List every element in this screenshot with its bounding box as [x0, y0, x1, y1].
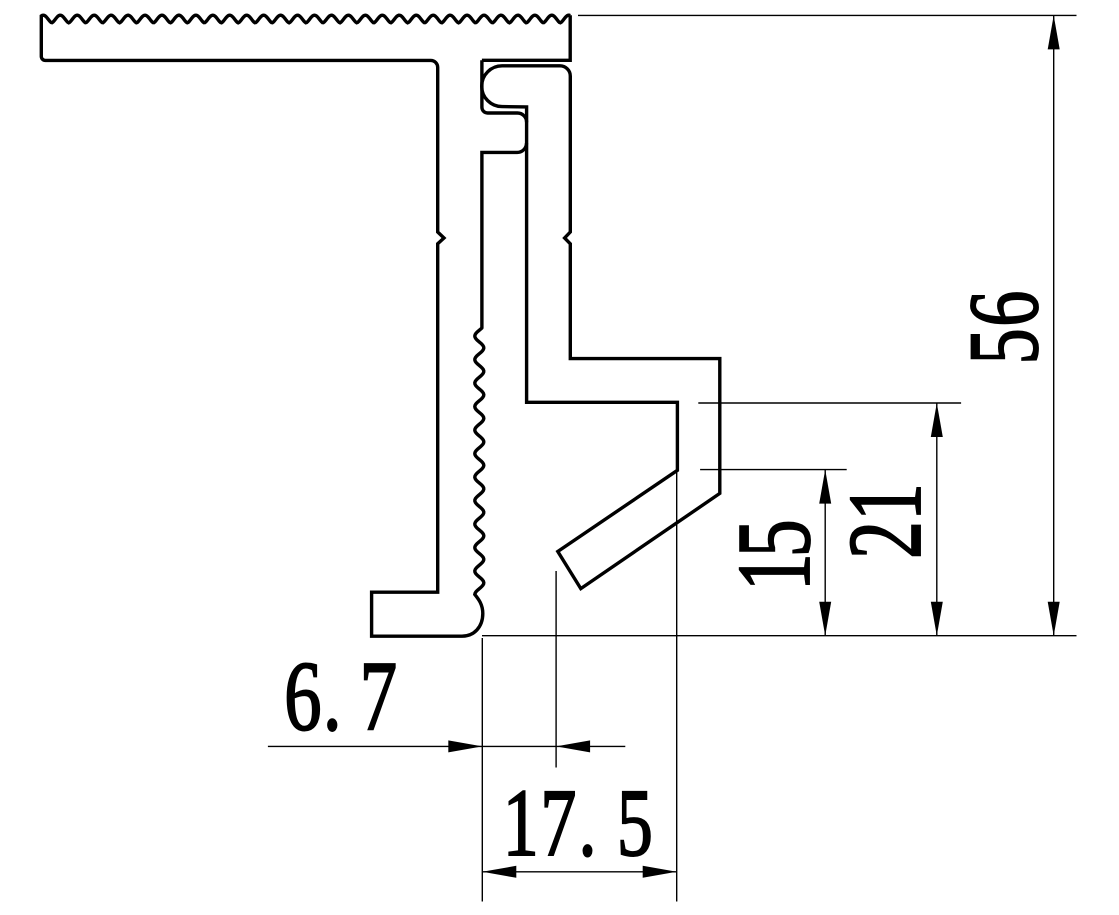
svg-text:.: . — [578, 770, 596, 876]
svg-text:5: 5 — [947, 328, 1058, 364]
svg-text:1: 1 — [826, 483, 943, 521]
svg-text:6: 6 — [947, 291, 1058, 327]
svg-text:5: 5 — [617, 770, 653, 876]
svg-text:1: 1 — [503, 770, 539, 876]
svg-text:5: 5 — [715, 519, 832, 557]
svg-text:6: 6 — [284, 641, 321, 752]
svg-text:2: 2 — [826, 521, 943, 559]
svg-text:7: 7 — [360, 641, 397, 752]
svg-text:7: 7 — [540, 770, 576, 876]
svg-text:.: . — [323, 641, 342, 752]
svg-text:1: 1 — [715, 553, 832, 591]
